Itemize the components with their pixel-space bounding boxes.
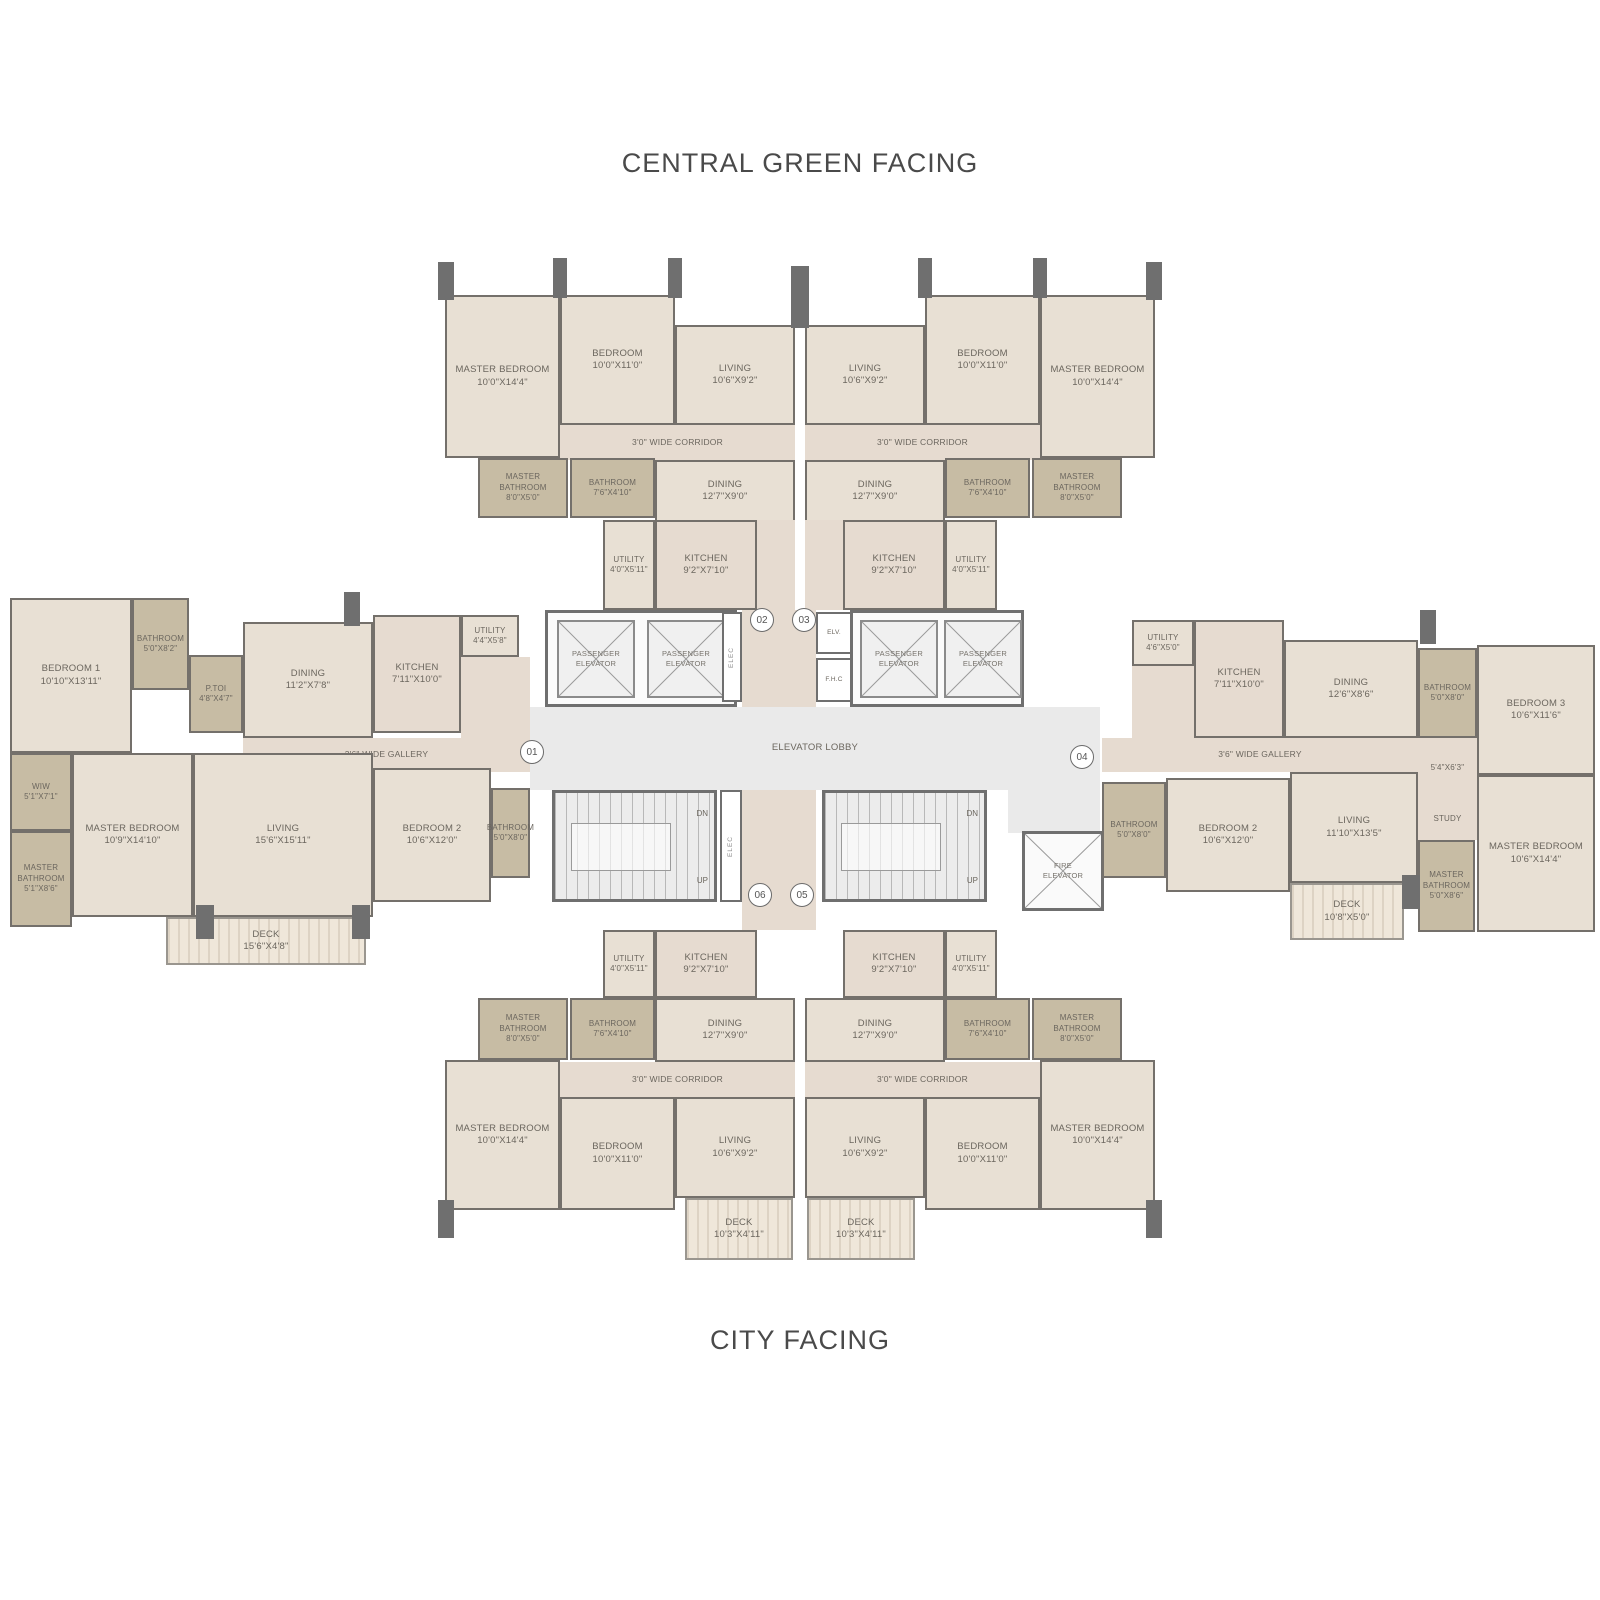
room-03-dining: DINING 12'7"X9'0" <box>805 460 945 522</box>
room-04-utility: UTILITY 4'6"X5'0" <box>1132 620 1194 666</box>
lobby-extension <box>1008 790 1100 833</box>
stair-landing <box>571 823 672 872</box>
unit-circle-02: 02 <box>750 608 774 632</box>
room-02-living: LIVING 10'6"X9'2" <box>675 325 795 425</box>
room-05-bathroom: BATHROOM 7'6"X4'10" <box>945 998 1030 1060</box>
passenger-elevator-1: PASSENGER ELEVATOR <box>557 620 635 698</box>
room-01-master-bathroom: MASTER BATHROOM 5'1"X8'6" <box>10 831 72 927</box>
title-city-facing: CITY FACING <box>0 1325 1600 1356</box>
room-06-dining: DINING 12'7"X9'0" <box>655 998 795 1062</box>
room-06-living: LIVING 10'6"X9'2" <box>675 1097 795 1198</box>
column <box>352 905 370 939</box>
room-04-bathroom: BATHROOM 5'0"X8'0" <box>1102 782 1166 878</box>
passenger-elevator-4: PASSENGER ELEVATOR <box>944 620 1022 698</box>
stair-landing <box>841 823 942 872</box>
room-01-living: LIVING 15'6"X15'11" <box>193 753 373 917</box>
room-04-master-bedroom: MASTER BEDROOM 10'6"X14'4" <box>1477 775 1595 932</box>
room-04-bathroom-top: BATHROOM 5'0"X8'0" <box>1418 648 1477 738</box>
room-05-master-bathroom: MASTER BATHROOM 8'0"X5'0" <box>1032 998 1122 1060</box>
room-03-corridor: 3'0" WIDE CORRIDOR <box>805 425 1040 460</box>
column <box>918 258 932 298</box>
room-02-utility: UTILITY 4'0"X5'11" <box>603 520 655 610</box>
room-05-corridor: 3'0" WIDE CORRIDOR <box>805 1062 1040 1097</box>
column <box>791 266 809 328</box>
room-05-bedroom: BEDROOM 10'0"X11'0" <box>925 1097 1040 1210</box>
room-05-deck: DECK 10'3"X4'11" <box>807 1198 915 1260</box>
room-02-corridor: 3'0" WIDE CORRIDOR <box>560 425 795 460</box>
room-02-master-bathroom: MASTER BATHROOM 8'0"X5'0" <box>478 458 568 518</box>
floor-plan: CENTRAL GREEN FACING CITY FACING ELEVATO… <box>0 0 1600 1600</box>
room-01-utility: UTILITY 4'4"X5'8" <box>461 615 519 657</box>
room-03-bedroom: BEDROOM 10'0"X11'0" <box>925 295 1040 425</box>
column <box>1146 1200 1162 1238</box>
room-01-wiw: WIW 5'1"X7'1" <box>10 753 72 831</box>
room-04-gallery: 3'6" WIDE GALLERY <box>1102 738 1418 772</box>
room-04-deck: DECK 10'8"X5'0" <box>1290 883 1404 940</box>
room-03-master-bathroom: MASTER BATHROOM 8'0"X5'0" <box>1032 458 1122 518</box>
room-04-bedroom2: BEDROOM 2 10'6"X12'0" <box>1166 778 1290 892</box>
room-04-kitchen: KITCHEN 7'11"X10'0" <box>1194 620 1284 738</box>
column <box>438 262 454 300</box>
room-01-kitchen: KITCHEN 7'11"X10'0" <box>373 615 461 733</box>
column <box>1146 262 1162 300</box>
room-06-utility: UTILITY 4'0"X5'11" <box>603 930 655 998</box>
room-02-bedroom: BEDROOM 10'0"X11'0" <box>560 295 675 425</box>
room-01-bedroom1: BEDROOM 1 10'10"X13'11" <box>10 598 132 753</box>
room-06-deck: DECK 10'3"X4'11" <box>685 1198 793 1260</box>
column <box>1420 610 1436 644</box>
column <box>1402 875 1420 909</box>
room-02-bathroom: BATHROOM 7'6"X4'10" <box>570 458 655 518</box>
room-04-study: STUDY <box>1418 798 1477 840</box>
room-03-kitchen: KITCHEN 9'2"X7'10" <box>843 520 945 610</box>
column <box>344 592 360 626</box>
passenger-elevator-3: PASSENGER ELEVATOR <box>860 620 938 698</box>
room-02-kitchen: KITCHEN 9'2"X7'10" <box>655 520 757 610</box>
unit-circle-01: 01 <box>520 740 544 764</box>
room-03-living: LIVING 10'6"X9'2" <box>805 325 925 425</box>
column <box>1033 258 1047 298</box>
room-02-dining: DINING 12'7"X9'0" <box>655 460 795 522</box>
fire-elevator: FIRE ELEVATOR <box>1022 831 1104 911</box>
unit-circle-06: 06 <box>748 883 772 907</box>
room-01-ptoi: P.TOI 4'8"X4'7" <box>189 655 243 733</box>
column <box>196 905 214 939</box>
room-04-living: LIVING 11'10"X13'5" <box>1290 772 1418 883</box>
room-06-master-bedroom: MASTER BEDROOM 10'0"X14'4" <box>445 1060 560 1210</box>
unit-circle-03: 03 <box>792 608 816 632</box>
staircase-right: DN UP <box>822 790 987 902</box>
room-01-bathroom: BATHROOM 5'0"X8'2" <box>132 598 189 690</box>
room-01-master-bedroom: MASTER BEDROOM 10'9"X14'10" <box>72 753 193 917</box>
room-01-bedroom2: BEDROOM 2 10'6"X12'0" <box>373 768 491 902</box>
room-06-kitchen: KITCHEN 9'2"X7'10" <box>655 930 757 998</box>
unit-circle-05: 05 <box>790 883 814 907</box>
room-01-bathroom2: BATHROOM 5'0"X8'0" <box>491 788 530 878</box>
room-01-entry <box>461 657 530 738</box>
unit-circle-04: 04 <box>1070 745 1094 769</box>
room-06-corridor: 3'0" WIDE CORRIDOR <box>560 1062 795 1097</box>
room-05-master-bedroom: MASTER BEDROOM 10'0"X14'4" <box>1040 1060 1155 1210</box>
room-03-master-bedroom: MASTER BEDROOM 10'0"X14'4" <box>1040 295 1155 458</box>
room-06-bathroom: BATHROOM 7'6"X4'10" <box>570 998 655 1060</box>
room-02-entry <box>757 520 795 610</box>
passenger-elevator-2: PASSENGER ELEVATOR <box>647 620 725 698</box>
room-03-utility: UTILITY 4'0"X5'11" <box>945 520 997 610</box>
room-03-entry <box>805 520 843 610</box>
room-04-dining: DINING 12'6"X8'6" <box>1284 640 1418 738</box>
column <box>438 1200 454 1238</box>
fhc-room: F.H.C <box>816 658 852 702</box>
staircase-left: DN UP <box>552 790 717 902</box>
elv-room: ELV. <box>816 612 852 654</box>
room-05-kitchen: KITCHEN 9'2"X7'10" <box>843 930 945 998</box>
entry-corridor-bottom <box>742 790 816 930</box>
column <box>553 258 567 298</box>
room-06-master-bathroom: MASTER BATHROOM 8'0"X5'0" <box>478 998 568 1060</box>
room-04-entry <box>1132 666 1194 738</box>
room-04-master-bathroom: MASTER BATHROOM 5'0"X8'6" <box>1418 840 1475 932</box>
room-05-utility: UTILITY 4'0"X5'11" <box>945 930 997 998</box>
room-01-dining: DINING 11'2"X7'8" <box>243 622 373 738</box>
room-04-passage: 5'4"X6'3" <box>1418 738 1477 798</box>
title-central-green-facing: CENTRAL GREEN FACING <box>0 148 1600 179</box>
elevator-lobby: ELEVATOR LOBBY <box>530 707 1100 790</box>
room-05-living: LIVING 10'6"X9'2" <box>805 1097 925 1198</box>
column <box>668 258 682 298</box>
room-02-master-bedroom: MASTER BEDROOM 10'0"X14'4" <box>445 295 560 458</box>
elec-shaft-top: ELEC <box>722 612 742 702</box>
room-05-dining: DINING 12'7"X9'0" <box>805 998 945 1062</box>
room-04-bedroom3: BEDROOM 3 10'6"X11'6" <box>1477 645 1595 775</box>
elec-shaft-bottom: ELEC <box>720 790 742 902</box>
room-06-bedroom: BEDROOM 10'0"X11'0" <box>560 1097 675 1210</box>
room-03-bathroom: BATHROOM 7'6"X4'10" <box>945 458 1030 518</box>
